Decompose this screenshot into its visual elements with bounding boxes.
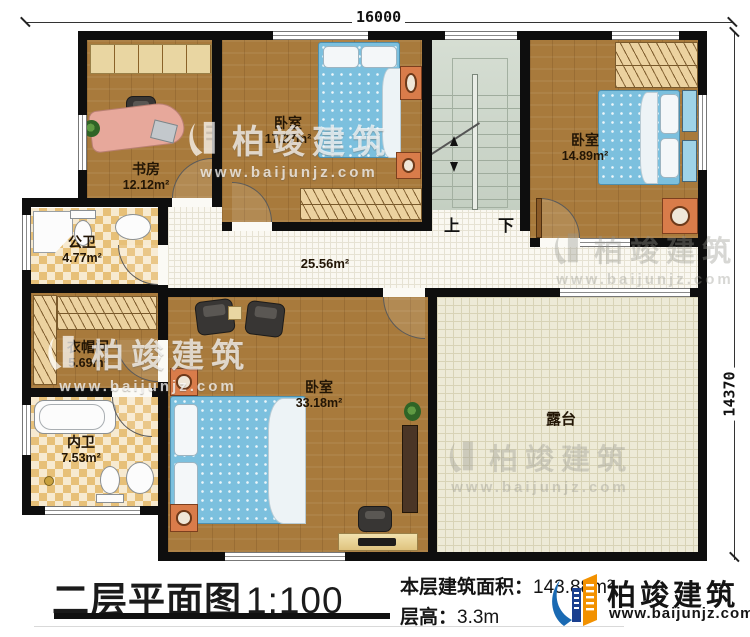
window: [612, 31, 679, 40]
armchair-icon: [244, 300, 286, 338]
plant-icon: [404, 402, 421, 421]
door-leaf: [536, 198, 542, 238]
stairs-down-label: 下: [498, 212, 514, 236]
window: [698, 95, 707, 170]
divider-line: [34, 626, 624, 627]
blanket-icon: [382, 68, 401, 158]
nightstand-lamp-icon: [170, 504, 198, 532]
blanket-icon: [268, 398, 306, 524]
bathtub-inner: [39, 404, 105, 430]
wardrobe-icon: [300, 188, 422, 220]
window: [445, 31, 517, 40]
nightstand-icon: [682, 90, 697, 132]
floor-plan-page: 16000 14370: [0, 0, 750, 637]
wall: [520, 31, 530, 231]
right-dimension-line: [734, 33, 735, 560]
room-label-terrace: 露台: [546, 411, 576, 429]
pillow-icon: [323, 46, 359, 68]
brand-website: www.baijunjz.com: [609, 605, 750, 622]
window: [78, 115, 87, 170]
door-opening: [172, 198, 212, 207]
wardrobe-icon: [615, 42, 698, 88]
dresser-icon: [402, 425, 418, 513]
pillow-icon: [361, 46, 397, 68]
pillow-icon: [174, 404, 198, 456]
nightstand-lamp-icon: [396, 152, 421, 179]
blanket-icon: [640, 92, 658, 184]
nightstand-icon: [682, 140, 697, 182]
room-label-bedroom2: 卧室14.89m²: [562, 132, 609, 164]
floor-height-stat: 层高：3.3m: [400, 602, 499, 629]
tv-icon: [358, 538, 396, 546]
nightstand-lamp-icon: [400, 66, 422, 100]
door-opening: [112, 388, 152, 397]
chair-icon: [358, 506, 392, 532]
nightstand-lamp-icon: [170, 368, 198, 396]
window: [273, 31, 368, 40]
title-underline: [54, 613, 390, 619]
room-label-public-bath: 公卫4.77m²: [62, 234, 102, 266]
door-opening: [158, 245, 168, 285]
stairs-arrow-up-icon: [450, 136, 458, 146]
pillow-icon: [660, 94, 679, 134]
hallway-area-label: 25.56m²: [301, 256, 349, 272]
room-label-cloakroom: 衣帽间5.69m²: [67, 339, 109, 371]
brand-logo-icon: [548, 568, 604, 630]
room-label-study: 书房12.12m²: [123, 161, 170, 193]
window: [45, 506, 140, 515]
sink-icon: [115, 214, 151, 240]
right-dimension-label: 14370: [721, 367, 739, 420]
top-dimension-label: 16000: [352, 8, 405, 26]
window: [22, 215, 31, 270]
stairs-up-label: 上: [444, 212, 460, 236]
wardrobe-icon: [33, 295, 57, 385]
wall: [428, 288, 437, 561]
wall: [22, 284, 168, 293]
window: [225, 552, 345, 561]
wardrobe-icon: [57, 296, 157, 330]
vanity-sink-icon: [662, 198, 698, 234]
cabinet-icon: [90, 44, 212, 74]
toilet-icon: [70, 210, 96, 219]
stairs-arrow-down-icon: [450, 162, 458, 172]
door-opening: [158, 340, 168, 382]
wall: [422, 31, 432, 231]
window: [22, 405, 31, 455]
side-table-icon: [228, 306, 242, 320]
toilet-icon: [100, 466, 120, 494]
door-opening: [540, 238, 580, 247]
door-opening: [232, 222, 272, 231]
toilet-icon: [96, 494, 124, 503]
sink-icon: [126, 462, 154, 494]
door-opening: [383, 288, 425, 297]
wall: [212, 31, 222, 207]
terrace-railing: [560, 288, 690, 297]
pillow-icon: [660, 138, 679, 178]
room-label-bedroom3: 卧室33.18m²: [296, 379, 343, 411]
room-label-ensuite-bath: 内卫7.53m²: [61, 434, 101, 466]
room-label-bedroom1: 卧室17.27m²: [265, 115, 312, 147]
stairs-rail: [472, 74, 478, 210]
floor-drain-icon: [44, 476, 54, 486]
